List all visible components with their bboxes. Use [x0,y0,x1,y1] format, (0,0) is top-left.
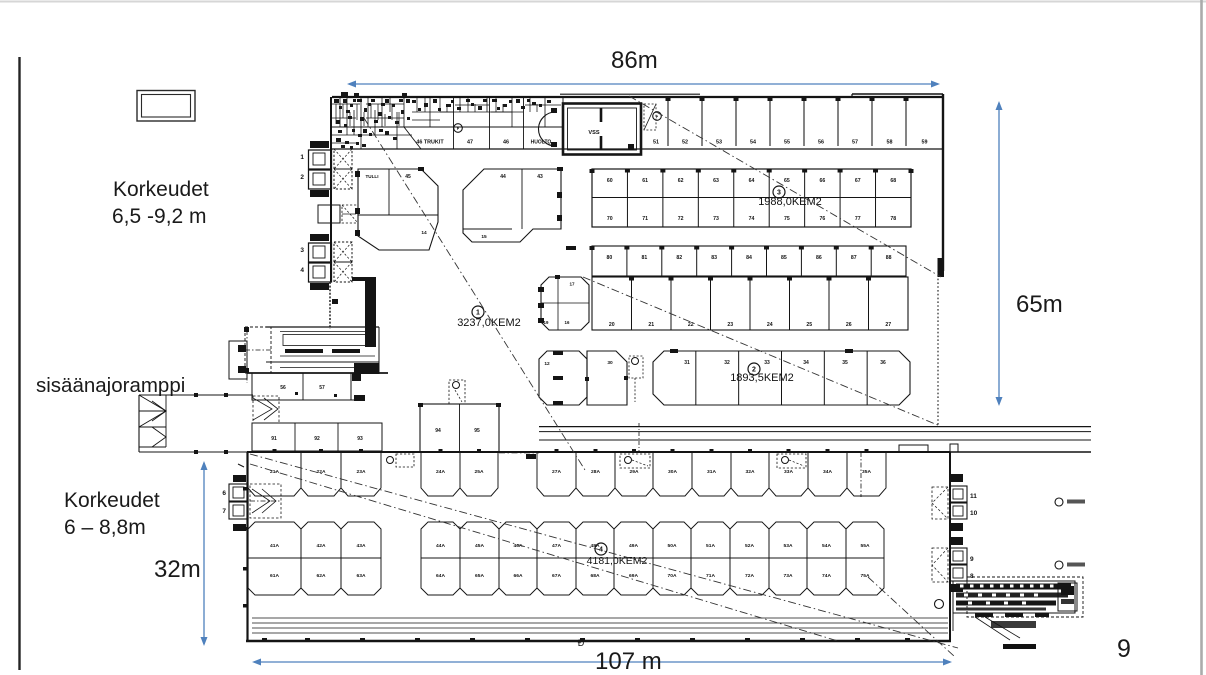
svg-text:33A: 33A [784,469,793,475]
svg-text:31A: 31A [707,469,716,475]
svg-text:VSS: VSS [588,130,599,136]
svg-text:15: 15 [481,234,487,240]
svg-text:3237,0KEM2: 3237,0KEM2 [457,317,521,329]
svg-text:2: 2 [300,174,304,181]
svg-text:61: 61 [642,178,648,184]
svg-text:82: 82 [676,255,682,261]
svg-text:62: 62 [678,178,684,184]
svg-text:56: 56 [818,140,824,146]
svg-text:64: 64 [749,178,755,184]
svg-text:9: 9 [1117,635,1131,663]
svg-text:69A: 69A [629,573,638,579]
svg-text:71: 71 [642,216,648,222]
svg-text:56: 56 [280,385,286,391]
svg-text:52: 52 [682,140,688,146]
svg-text:21A: 21A [270,469,279,475]
svg-text:Korkeudet: Korkeudet [64,489,160,512]
svg-text:85: 85 [781,255,787,261]
svg-text:8: 8 [970,573,974,580]
svg-text:12: 12 [544,361,550,367]
svg-text:46 TRUKIT: 46 TRUKIT [416,140,444,146]
svg-text:71A: 71A [706,573,715,579]
svg-text:72A: 72A [745,573,754,579]
svg-text:63: 63 [713,178,719,184]
svg-text:65: 65 [784,178,790,184]
svg-text:32: 32 [724,360,730,366]
svg-text:26: 26 [846,322,852,328]
svg-text:22A: 22A [317,469,326,475]
svg-text:87: 87 [851,255,857,261]
svg-text:6 – 8,8m: 6 – 8,8m [64,516,146,539]
svg-text:1: 1 [476,310,480,317]
svg-text:19: 19 [544,320,549,325]
svg-text:49A: 49A [629,543,638,549]
svg-text:11: 11 [970,493,977,500]
svg-text:25: 25 [806,322,812,328]
svg-text:83: 83 [711,255,717,261]
svg-text:76: 76 [819,216,825,222]
svg-text:6: 6 [222,490,226,497]
svg-text:4181,0KEM2: 4181,0KEM2 [587,555,648,567]
svg-text:31: 31 [684,360,690,366]
svg-text:10: 10 [970,510,978,517]
svg-text:92: 92 [314,436,320,442]
svg-text:46: 46 [503,140,509,146]
svg-text:4: 4 [300,267,304,274]
svg-text:55A: 55A [861,543,870,549]
svg-text:51A: 51A [706,543,715,549]
svg-text:29A: 29A [630,469,639,475]
svg-text:22: 22 [688,322,694,328]
svg-text:16: 16 [565,320,570,325]
svg-text:65m: 65m [1016,291,1063,318]
svg-text:68: 68 [890,178,896,184]
svg-text:1893,5KEM2: 1893,5KEM2 [730,372,794,384]
svg-text:86m: 86m [611,47,658,74]
svg-text:80: 80 [607,255,613,261]
svg-text:28A: 28A [591,469,600,475]
svg-text:72: 72 [678,216,684,222]
svg-text:63A: 63A [357,573,366,579]
svg-text:77: 77 [855,216,861,222]
svg-text:45: 45 [405,174,411,180]
svg-text:Ð: Ð [578,638,585,648]
svg-text:44A: 44A [436,543,445,549]
svg-text:93: 93 [357,436,363,442]
svg-text:88: 88 [886,255,892,261]
svg-text:61A: 61A [270,573,279,579]
svg-text:30A: 30A [668,469,677,475]
svg-text:35: 35 [842,360,848,366]
svg-text:59: 59 [922,140,928,146]
svg-text:TULLI: TULLI [365,174,378,179]
svg-text:66: 66 [819,178,825,184]
svg-text:74A: 74A [822,573,831,579]
svg-text:68A: 68A [591,573,600,579]
svg-text:7: 7 [222,508,226,515]
svg-text:70: 70 [607,216,613,222]
svg-text:35A: 35A [862,469,871,475]
svg-text:1: 1 [300,154,304,161]
svg-text:54A: 54A [822,543,831,549]
svg-text:60: 60 [607,178,613,184]
svg-text:41A: 41A [270,543,279,549]
svg-text:6,5 -9,2 m: 6,5 -9,2 m [112,205,207,228]
svg-text:1988,0KEM2: 1988,0KEM2 [758,196,822,208]
svg-text:30: 30 [607,360,613,366]
svg-text:27A: 27A [552,469,561,475]
svg-text:sisäänajoramppi: sisäänajoramppi [36,374,185,397]
svg-text:95: 95 [474,428,480,434]
svg-text:84: 84 [746,255,752,261]
svg-text:33: 33 [764,360,770,366]
svg-text:67: 67 [855,178,861,184]
svg-text:86: 86 [816,255,822,261]
svg-text:53A: 53A [784,543,793,549]
svg-text:3: 3 [300,247,304,254]
svg-text:25A: 25A [475,469,484,475]
svg-text:32m: 32m [154,556,201,583]
svg-text:23A: 23A [357,469,366,475]
svg-text:73A: 73A [784,573,793,579]
svg-text:32A: 32A [746,469,755,475]
svg-text:64A: 64A [436,573,445,579]
svg-text:53: 53 [716,140,722,146]
svg-text:Korkeudet: Korkeudet [113,178,209,201]
svg-text:43: 43 [537,174,543,180]
svg-text:50A: 50A [668,543,677,549]
svg-text:36: 36 [880,360,886,366]
svg-text:75: 75 [784,216,790,222]
svg-text:47: 47 [467,140,473,146]
svg-text:24A: 24A [436,469,445,475]
svg-text:47A: 47A [552,543,561,549]
svg-text:57: 57 [319,385,325,391]
svg-text:20: 20 [609,322,615,328]
svg-text:34A: 34A [823,469,832,475]
svg-text:24: 24 [767,322,773,328]
svg-text:45A: 45A [475,543,484,549]
svg-text:51: 51 [653,140,659,146]
svg-text:70A: 70A [668,573,677,579]
svg-text:94: 94 [435,428,441,434]
svg-text:21: 21 [648,322,654,328]
svg-text:54: 54 [750,140,756,146]
svg-text:73: 73 [713,216,719,222]
svg-text:23: 23 [727,322,733,328]
svg-text:66A: 66A [514,573,523,579]
svg-text:91: 91 [271,436,277,442]
svg-text:42A: 42A [317,543,326,549]
svg-text:34: 34 [803,360,809,366]
svg-text:81: 81 [641,255,647,261]
svg-text:74: 74 [749,216,755,222]
svg-text:62A: 62A [317,573,326,579]
svg-text:55: 55 [784,140,790,146]
svg-text:52A: 52A [745,543,754,549]
svg-text:17: 17 [569,282,575,287]
svg-text:107 m: 107 m [595,648,662,675]
svg-text:57: 57 [852,140,858,146]
svg-text:78: 78 [890,216,896,222]
svg-text:27: 27 [885,322,891,328]
svg-text:67A: 67A [552,573,561,579]
svg-text:9: 9 [970,556,974,563]
svg-text:43A: 43A [357,543,366,549]
svg-text:44: 44 [500,174,506,180]
svg-text:58: 58 [887,140,893,146]
svg-text:14: 14 [421,230,427,236]
svg-text:65A: 65A [475,573,484,579]
